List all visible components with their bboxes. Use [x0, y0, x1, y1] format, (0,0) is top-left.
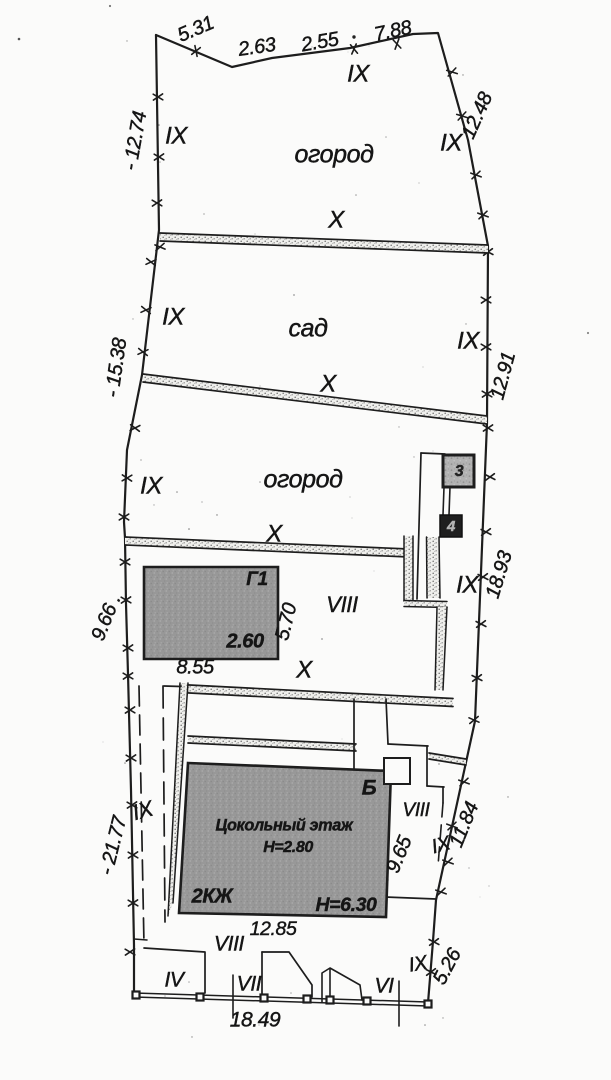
svg-text:Н=6.30: Н=6.30: [315, 894, 377, 916]
svg-text:X: X: [319, 370, 337, 397]
svg-text:2.60: 2.60: [225, 630, 264, 652]
svg-text:VI: VI: [374, 975, 394, 998]
svg-text:IV: IV: [164, 969, 185, 992]
svg-text:VIII: VIII: [326, 592, 358, 617]
svg-text:Г1: Г1: [246, 569, 267, 590]
svg-text:IX: IX: [347, 60, 370, 87]
svg-text:Б: Б: [362, 777, 377, 800]
svg-text:IX: IX: [457, 327, 480, 354]
svg-text:VII: VII: [237, 973, 262, 996]
svg-text:8.55: 8.55: [176, 656, 215, 678]
svg-text:огород: огород: [263, 466, 343, 494]
svg-text:IX: IX: [140, 472, 163, 499]
svg-text:Н=2.80: Н=2.80: [263, 839, 313, 856]
svg-text:18.49: 18.49: [230, 1009, 281, 1032]
svg-text:3: 3: [455, 463, 464, 480]
svg-text:X: X: [327, 206, 345, 233]
svg-text:X: X: [295, 656, 313, 683]
svg-text:X: X: [265, 520, 283, 547]
svg-text:12.85: 12.85: [250, 918, 297, 940]
svg-text:огород: огород: [294, 141, 374, 169]
svg-text:VIII: VIII: [214, 933, 244, 956]
svg-text:IX: IX: [165, 122, 188, 149]
svg-text:VIII: VIII: [403, 800, 431, 821]
svg-text:4: 4: [446, 518, 456, 535]
svg-text:сад: сад: [288, 315, 328, 343]
svg-text:IX: IX: [440, 129, 463, 156]
svg-text:IX: IX: [162, 303, 185, 330]
svg-text:Цокольный этаж: Цокольный этаж: [216, 816, 354, 834]
svg-text:2КЖ: 2КЖ: [191, 885, 235, 907]
svg-text:IX: IX: [456, 571, 479, 598]
